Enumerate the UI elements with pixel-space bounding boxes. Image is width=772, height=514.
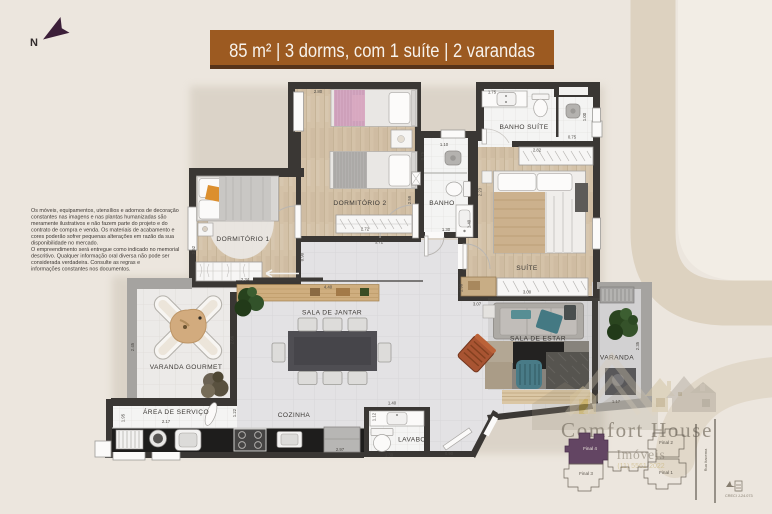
svg-text:1.12: 1.12: [372, 412, 377, 421]
svg-text:2.17: 2.17: [162, 419, 171, 424]
svg-text:2.59: 2.59: [407, 195, 412, 204]
svg-text:1.95: 1.95: [121, 413, 126, 422]
svg-text:2.52: 2.52: [191, 245, 196, 254]
svg-text:contrato de compra e venda: contrato de compra e venda. Os materiais…: [31, 228, 175, 234]
svg-text:2.45: 2.45: [130, 342, 135, 351]
svg-text:2.82: 2.82: [533, 148, 542, 153]
svg-text:SALA DE ESTAR: SALA DE ESTAR: [510, 336, 566, 343]
svg-text:Final 2: Final 2: [659, 440, 673, 445]
svg-text:2.66: 2.66: [230, 335, 235, 344]
svg-text:2.35: 2.35: [635, 341, 640, 350]
svg-text:SUÍTE: SUÍTE: [516, 263, 538, 272]
svg-text:1.30: 1.30: [385, 453, 394, 458]
svg-text:descritivo. Qualquer informa: descritivo. Qualquer informação oral div…: [31, 254, 170, 260]
svg-text:LAVABO: LAVABO: [398, 437, 426, 444]
svg-text:2.97: 2.97: [336, 447, 345, 452]
svg-text:BANHO SUÍTE: BANHO SUÍTE: [499, 122, 548, 131]
svg-text:DORMITÓRIO 2: DORMITÓRIO 2: [333, 198, 386, 207]
svg-text:Os móveis, equipamentos, utens: Os móveis, equipamentos, utensílios e ad…: [31, 208, 179, 214]
svg-text:COZINHA: COZINHA: [278, 412, 311, 419]
svg-text:meramente ilustrativos e nã: meramente ilustrativos e não fazem parte…: [31, 221, 168, 227]
svg-text:1.75: 1.75: [488, 90, 497, 95]
svg-text:3.00: 3.00: [523, 290, 532, 295]
svg-text:0.75: 0.75: [568, 135, 577, 140]
svg-text:Final 1: Final 1: [659, 470, 673, 475]
svg-text:0.90: 0.90: [300, 252, 305, 261]
svg-text:1.40: 1.40: [467, 219, 472, 228]
svg-text:DORMITÓRIO 1: DORMITÓRIO 1: [216, 234, 269, 243]
svg-text:disponibilidade no mercado.: disponibilidade no mercado.: [31, 241, 98, 247]
svg-text:1.22: 1.22: [232, 408, 237, 417]
svg-text:1.40: 1.40: [388, 401, 397, 406]
svg-text:(11) 5561-2022: (11) 5561-2022: [617, 463, 664, 470]
svg-text:2.72: 2.72: [361, 227, 370, 232]
svg-text:2.23: 2.23: [478, 187, 483, 196]
svg-text:3.72: 3.72: [375, 240, 384, 245]
svg-text:Rua Itacema: Rua Itacema: [703, 448, 708, 471]
svg-text:2.34: 2.34: [241, 277, 250, 282]
svg-text:85 m² | 3 dorms, com 1 suíte |: 85 m² | 3 dorms, com 1 suíte | 2 varanda…: [229, 40, 535, 62]
svg-text:CRECI J-24.073: CRECI J-24.073: [725, 494, 753, 498]
svg-text:ÁREA DE SERVIÇO: ÁREA DE SERVIÇO: [143, 407, 209, 416]
svg-text:1.10: 1.10: [440, 142, 449, 147]
svg-text:4.40: 4.40: [324, 285, 333, 290]
svg-text:cores poderão sofrer pequen: cores poderão sofrer pequenas alterações…: [31, 234, 174, 240]
svg-text:N: N: [30, 37, 38, 49]
svg-text:informações constantes nos doc: informações constantes nos documentos.: [31, 267, 130, 273]
svg-text:Imóveis: Imóveis: [616, 447, 665, 462]
svg-text:1.98: 1.98: [459, 283, 464, 292]
svg-text:2.80: 2.80: [314, 89, 323, 94]
svg-text:1.30: 1.30: [442, 227, 451, 232]
svg-text:BANHO: BANHO: [429, 200, 454, 207]
svg-text:constantes nas imagens e n: constantes nas imagens e nas plantas hum…: [31, 215, 166, 221]
svg-text:3.07: 3.07: [473, 302, 482, 307]
svg-text:considerada verdadeira. Consul: considerada verdadeira. Consulte as regr…: [31, 260, 140, 266]
svg-text:Final 4: Final 4: [583, 446, 597, 451]
svg-text:1.00: 1.00: [582, 112, 587, 121]
svg-text:VARANDA GOURMET: VARANDA GOURMET: [150, 364, 223, 371]
svg-text:SALA DE JANTAR: SALA DE JANTAR: [302, 310, 362, 317]
svg-text:Final 3: Final 3: [579, 471, 593, 476]
svg-text:0.75: 0.75: [420, 151, 425, 160]
svg-text:0.90: 0.90: [445, 451, 454, 456]
svg-text:O empreendimento será entregue: O empreendimento será entregue como indi…: [31, 247, 179, 253]
